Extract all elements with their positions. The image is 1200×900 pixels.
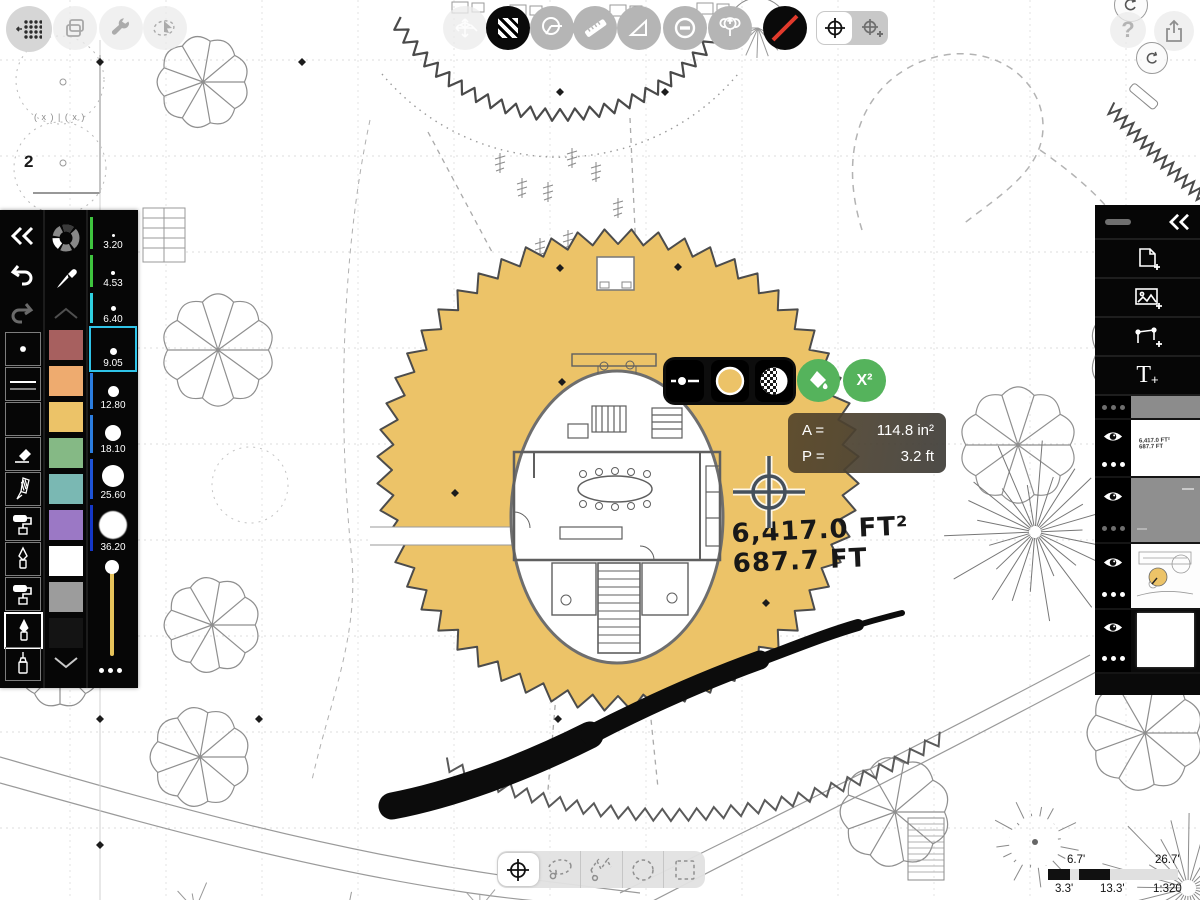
add-image-icon	[1134, 285, 1162, 311]
undo-button[interactable]	[6, 260, 38, 290]
pages-icon	[63, 16, 87, 40]
text-tool-icon: T	[1136, 362, 1151, 389]
colors-column	[45, 210, 88, 688]
x-squared-icon: X²	[857, 372, 873, 390]
slider-track	[110, 568, 114, 656]
add-page-icon	[1135, 246, 1161, 272]
paint-roller-icon	[11, 511, 35, 537]
scale-bottom-center: 13.3'	[1100, 883, 1125, 895]
scale-ratio: 1:320	[1153, 883, 1182, 895]
eyedropper-icon	[54, 266, 78, 292]
move-3d-button[interactable]	[443, 6, 487, 50]
eye-icon[interactable]	[1103, 430, 1123, 443]
swatch-purple[interactable]	[49, 510, 83, 540]
scale-top-left: 6.7'	[1067, 854, 1085, 866]
hatch-fill-button[interactable]	[486, 6, 530, 50]
rotate-icon	[1145, 51, 1160, 66]
layer-thumbnail[interactable]	[1131, 544, 1200, 610]
layer-thumbnail[interactable]	[1131, 610, 1200, 674]
tool-roller-2[interactable]	[5, 577, 41, 611]
paint-bucket-icon	[807, 369, 831, 393]
tool-line[interactable]	[5, 367, 41, 401]
scale-segment	[1070, 869, 1079, 880]
building-entrance-notch	[597, 257, 634, 290]
layer-row-blank[interactable]	[1095, 610, 1200, 674]
size-option-6[interactable]: 18.10	[90, 412, 136, 456]
slider-knob[interactable]	[105, 560, 119, 574]
more-sizes-button[interactable]	[99, 668, 122, 673]
eye-icon[interactable]	[1103, 556, 1123, 569]
wrench-icon	[109, 16, 133, 40]
tool-shape[interactable]	[5, 402, 41, 436]
redo-button[interactable]	[6, 298, 38, 328]
landscape-stamp-button[interactable]	[708, 6, 752, 50]
area-label: A =	[802, 422, 824, 439]
eraser-icon	[11, 443, 35, 465]
line-tool-icon	[10, 373, 36, 395]
panel-drag-handle[interactable]	[1105, 219, 1131, 225]
ruler-button[interactable]	[573, 6, 617, 50]
swatch-black[interactable]	[49, 618, 83, 648]
select-ellipse-tab[interactable]	[623, 851, 665, 888]
chevron-up-icon	[53, 306, 79, 320]
crosshair-icon	[505, 857, 531, 883]
size-option-4-selected[interactable]: 9.05	[89, 326, 137, 372]
pen-icon	[14, 618, 34, 644]
tool-pen-fine[interactable]	[5, 542, 41, 576]
eye-icon[interactable]	[1103, 621, 1123, 634]
swatch-white[interactable]	[49, 546, 83, 576]
area-value: 114.8 in²	[877, 422, 934, 439]
swatch-scroll-down[interactable]	[50, 652, 82, 674]
size-option-8[interactable]: 36.20	[90, 502, 136, 554]
rotate-hint-bottom	[1136, 42, 1168, 74]
swatch-teal[interactable]	[49, 474, 83, 504]
triangle-icon	[626, 15, 652, 41]
select-rect-tab[interactable]	[664, 851, 705, 888]
move-3d-icon	[452, 15, 478, 41]
select-crosshair-tab[interactable]	[498, 853, 539, 886]
layer-row-siteplan[interactable]	[1095, 544, 1200, 610]
layer-thumbnail[interactable]	[1131, 396, 1200, 420]
grid-menu-button[interactable]	[6, 6, 52, 52]
rotate-icon	[1123, 0, 1139, 13]
tool-sketch-pencil[interactable]	[5, 472, 41, 506]
scale-segment	[1110, 869, 1178, 880]
layer-row-partial[interactable]	[1095, 396, 1200, 420]
scale-segment	[1079, 869, 1110, 880]
add-page-button[interactable]	[1095, 240, 1200, 279]
tool-eraser[interactable]	[5, 437, 41, 471]
lasso-icon	[546, 857, 574, 883]
layer-menu-button[interactable]	[1102, 462, 1125, 467]
color-wheel-button[interactable]	[50, 222, 82, 254]
sketch-xx-label: ( x ) | ( x )	[34, 112, 85, 122]
stroke-style-button[interactable]	[666, 360, 704, 402]
swatch-yellow[interactable]	[49, 402, 83, 432]
scale-bottom-left: 3.3'	[1055, 883, 1073, 895]
solid-fill-button[interactable]	[711, 360, 749, 402]
tool-technical-pen[interactable]	[5, 647, 41, 681]
size-option-7[interactable]: 25.60	[90, 456, 136, 502]
layer-menu-button[interactable]	[1102, 526, 1125, 531]
collapse-panel-button[interactable]	[6, 222, 38, 250]
chevrons-left-icon	[9, 226, 35, 246]
opacity-slider[interactable]	[104, 560, 120, 660]
layer-thumbnail[interactable]	[1131, 478, 1200, 544]
ruler-icon	[582, 15, 608, 41]
size-option-5[interactable]: 12.80	[90, 370, 136, 412]
null-slash-icon	[763, 6, 807, 50]
dot-grid-icon	[16, 18, 42, 40]
eye-icon[interactable]	[1103, 490, 1123, 503]
layer-thumbnail[interactable]: 6,417.0 FT² 687.7 FT	[1131, 420, 1200, 478]
polygon-lasso-icon	[587, 857, 615, 883]
sketch-number-label: 2	[24, 152, 33, 172]
measurement-tooltip: A = 114.8 in² P = 3.2 ft	[788, 413, 946, 473]
undo-icon	[10, 264, 34, 286]
select-lasso-tab[interactable]	[540, 851, 582, 888]
crosshair-plus-icon	[859, 16, 883, 40]
help-button[interactable]: ?	[1110, 12, 1146, 48]
selection-mode-toolbar	[497, 851, 705, 888]
theta-guide-icon	[672, 15, 698, 41]
set-square-button[interactable]	[617, 6, 661, 50]
ellipse-marquee-icon	[630, 857, 656, 883]
square-units-button[interactable]: X²	[843, 359, 886, 402]
expand-panel-button[interactable]	[1164, 209, 1194, 235]
layer-menu-button[interactable]	[1102, 656, 1125, 661]
pattern-fill-button[interactable]	[755, 360, 793, 402]
sketch-pencil-icon	[12, 476, 34, 502]
tool-dot[interactable]	[5, 332, 41, 366]
cursor-lasso-icon	[152, 16, 178, 40]
chevrons-left-icon	[1167, 213, 1191, 231]
chevron-down-icon	[53, 656, 79, 670]
paint-roller-icon	[11, 581, 35, 607]
protractor-button[interactable]	[530, 6, 574, 50]
crosshair-icon	[823, 16, 847, 40]
scale-segment	[1048, 869, 1070, 880]
add-image-button[interactable]	[1095, 279, 1200, 318]
hatch-icon	[498, 18, 518, 38]
tools-column	[0, 210, 45, 688]
swatch-maroon[interactable]	[49, 330, 83, 360]
select-move-button[interactable]	[143, 6, 187, 50]
area-annotation: 6,417.0 FT²	[731, 511, 909, 549]
size-option-3[interactable]: 6.40	[90, 290, 136, 326]
drawing-tools-panel: 3.20 4.53 6.40 9.05 12.80	[0, 210, 138, 688]
layers-button[interactable]	[53, 6, 97, 50]
perimeter-label: P =	[802, 448, 825, 465]
perimeter-annotation: 687.7 FT	[732, 543, 868, 579]
layer-row-measurements[interactable]: 6,417.0 FT² 687.7 FT	[1095, 420, 1200, 478]
color-wheel-icon	[51, 223, 81, 253]
tree-stamp-icon	[717, 15, 743, 41]
tool-roller-1[interactable]	[5, 507, 41, 541]
solid-fill-icon	[714, 365, 746, 397]
no-fill-button[interactable]	[763, 6, 807, 50]
fill-style-toolbar	[663, 357, 796, 405]
swatch-orange[interactable]	[49, 366, 83, 396]
transform-crop-button[interactable]	[1095, 318, 1200, 357]
technical-pen-icon	[13, 651, 33, 677]
settings-button[interactable]	[99, 6, 143, 50]
checker-fill-icon	[758, 365, 790, 397]
stroke-point-icon	[670, 374, 700, 388]
perimeter-value: 3.2 ft	[901, 448, 934, 465]
rect-marquee-icon	[672, 857, 698, 883]
pages-layers-panel: T + 6,417.0 FT² 687.7 FT	[1095, 205, 1200, 695]
handwritten-measurements[interactable]: 6,417.0 FT² 687.7 FT	[731, 511, 911, 579]
dot-tool-icon	[12, 338, 34, 360]
snap-crosshair-add-tab[interactable]	[853, 11, 888, 45]
select-polygon-tab[interactable]	[581, 851, 623, 888]
layer-row-gray[interactable]	[1095, 478, 1200, 544]
angle-clock-icon	[539, 15, 565, 41]
fill-apply-button[interactable]	[797, 359, 840, 402]
stroke-size-column: 3.20 4.53 6.40 9.05 12.80	[88, 210, 138, 688]
snap-mode-control	[816, 11, 888, 45]
layer-menu-button[interactable]	[1102, 405, 1125, 410]
mini-siteplan	[1131, 544, 1200, 608]
trace-sketch-app: 6,417.0 FT² 687.7 FT	[0, 0, 1200, 900]
site-plan-canvas[interactable]: 6,417.0 FT² 687.7 FT	[0, 0, 1200, 900]
share-icon	[1163, 19, 1185, 43]
size-option-2[interactable]: 4.53	[90, 252, 136, 290]
circle-guide-button[interactable]	[663, 6, 707, 50]
transform-icon	[1134, 324, 1162, 350]
add-text-button[interactable]: T +	[1095, 357, 1200, 396]
question-icon: ?	[1121, 17, 1134, 43]
tool-pen-selected[interactable]	[4, 612, 43, 649]
swatch-green[interactable]	[49, 438, 83, 468]
scale-top-right: 26.7'	[1155, 854, 1180, 866]
layer-menu-button[interactable]	[1102, 592, 1125, 597]
size-option-1[interactable]: 3.20	[90, 214, 136, 252]
swatch-gray[interactable]	[49, 582, 83, 612]
redo-icon	[10, 302, 34, 324]
fine-pen-icon	[13, 546, 33, 572]
swatch-scroll-up[interactable]	[50, 302, 82, 324]
snap-crosshair-tab[interactable]	[817, 12, 852, 44]
eyedropper-button[interactable]	[50, 262, 82, 296]
